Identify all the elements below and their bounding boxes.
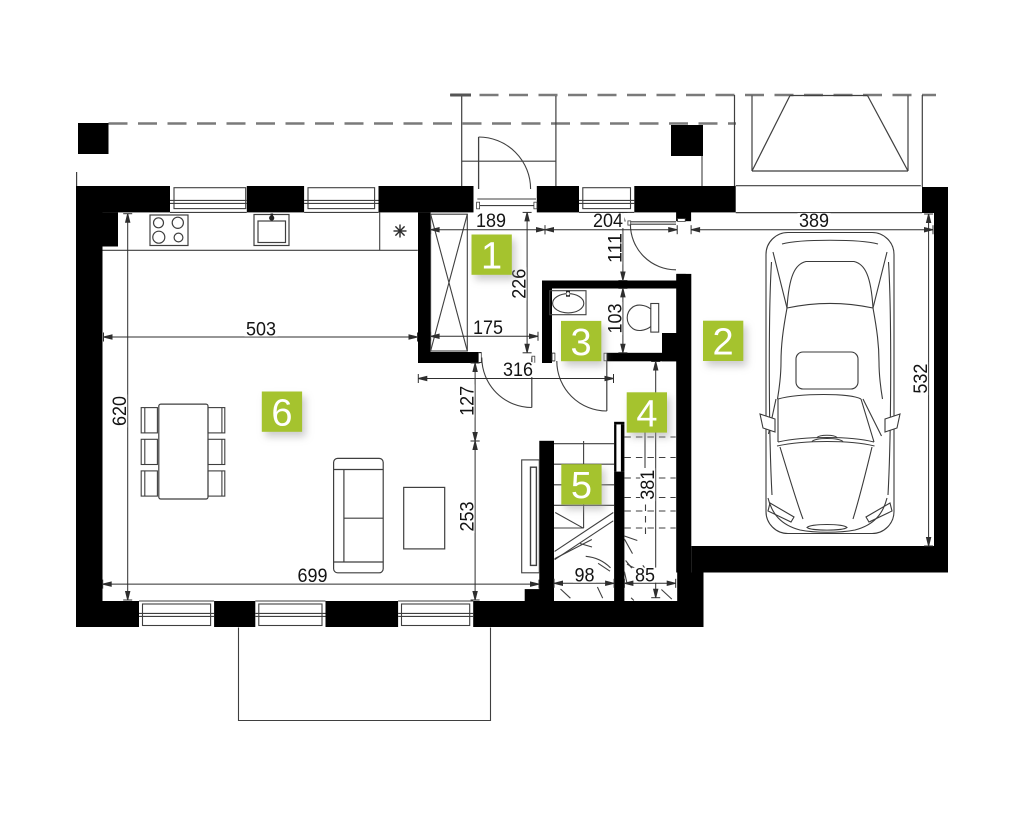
svg-text:1: 1 [481,236,502,278]
svg-text:2: 2 [713,322,734,364]
svg-text:189: 189 [476,210,506,232]
svg-text:6: 6 [271,393,292,435]
svg-text:699: 699 [298,565,328,587]
svg-text:253: 253 [457,501,479,531]
svg-text:103: 103 [604,303,626,333]
svg-text:620: 620 [109,396,131,426]
svg-text:204: 204 [593,210,623,232]
svg-text:532: 532 [910,364,932,394]
svg-text:5: 5 [571,465,592,507]
svg-text:127: 127 [457,386,479,416]
svg-text:85: 85 [635,565,655,587]
svg-text:503: 503 [246,319,276,341]
svg-text:316: 316 [503,359,533,381]
svg-text:175: 175 [473,317,503,339]
svg-text:98: 98 [575,565,595,587]
svg-text:389: 389 [799,210,829,232]
svg-text:4: 4 [636,393,657,435]
svg-text:3: 3 [571,322,592,364]
svg-text:111: 111 [604,233,626,263]
svg-text:381: 381 [637,470,659,500]
